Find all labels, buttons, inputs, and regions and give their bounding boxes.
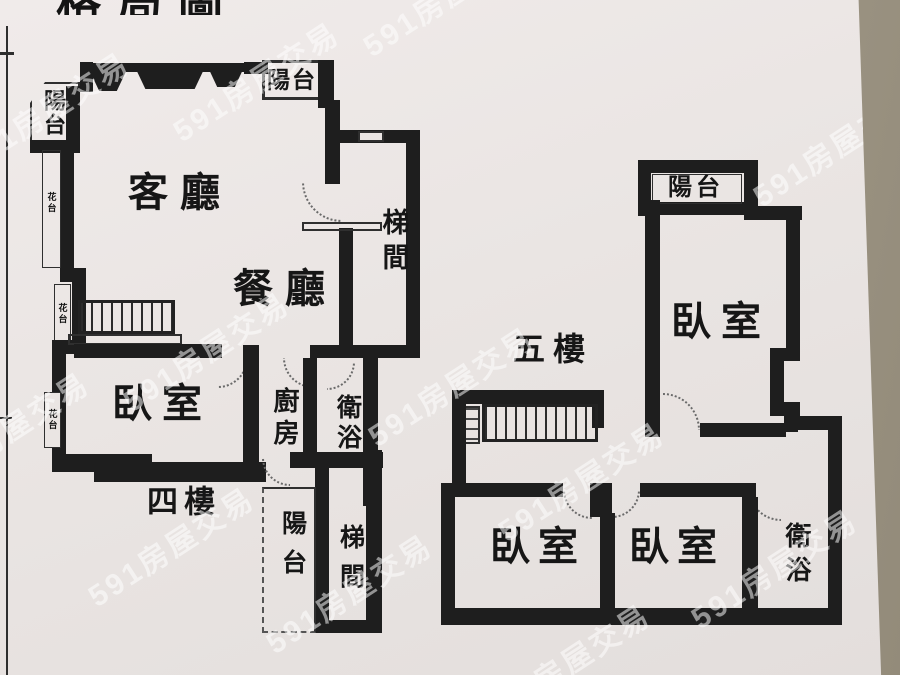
- margin-tick: [0, 417, 12, 419]
- door-threshold: [302, 222, 382, 231]
- page-title-text: 格局圖: [56, 0, 239, 15]
- wall: [243, 345, 259, 470]
- watermark: 591房屋交易: [743, 75, 900, 216]
- wall: [60, 148, 74, 274]
- floor-label-4f: 四樓: [147, 487, 221, 518]
- room-label-stairwell-bottom-4f: 梯間: [338, 524, 363, 602]
- wall: [310, 345, 420, 358]
- room-label-balcony-5f: 陽台: [668, 176, 724, 200]
- wall: [339, 228, 353, 358]
- room-label-bedroom-top-5f: 臥室: [671, 302, 771, 342]
- wall: [441, 483, 455, 615]
- room-label-stairwell-right-4f: 梯間: [380, 208, 407, 278]
- room-label-balcony-bottom-4f: 陽台: [280, 510, 305, 588]
- watermark: 591房屋交易: [474, 592, 658, 675]
- wall: [600, 513, 615, 615]
- wall: [640, 483, 756, 497]
- wall: [74, 344, 222, 358]
- room-label-balcony-top-4f: 陽台: [267, 69, 317, 92]
- wall: [645, 200, 660, 437]
- door-arc: [626, 393, 700, 467]
- planter-label: 花台: [48, 409, 57, 431]
- wall: [315, 620, 382, 633]
- floor-label-5f: 五樓: [513, 333, 593, 365]
- room-label-living-4f: 客廳: [128, 173, 232, 213]
- stairs-4f: [78, 300, 175, 334]
- wall: [452, 390, 604, 404]
- wall: [744, 497, 758, 615]
- wall: [126, 63, 214, 89]
- room-label-bedroom-left-5f: 臥室: [490, 527, 586, 567]
- wall: [80, 62, 93, 92]
- room-label-bathroom-4f: 衛浴: [335, 394, 360, 454]
- wall: [786, 214, 800, 360]
- wall: [206, 63, 246, 87]
- door-arc: [188, 328, 248, 388]
- wall: [315, 467, 329, 632]
- wall: [452, 404, 466, 484]
- room-label-bedroom-4f: 臥室: [112, 384, 212, 424]
- margin-line: [6, 26, 8, 675]
- clipped-page-title: 格局圖: [28, 0, 328, 15]
- door-arc: [302, 142, 382, 222]
- wall: [700, 423, 786, 437]
- room-label-bathroom-5f: 衛浴: [783, 522, 809, 590]
- watermark: 591房屋交易: [353, 0, 537, 65]
- stairs-5f: [482, 404, 598, 442]
- room-label-kitchen-4f: 廚房: [271, 387, 297, 451]
- planter-label: 花台: [47, 192, 56, 214]
- wall: [590, 483, 612, 517]
- wall: [441, 483, 563, 497]
- room-label-balcony-topleft-4f: 陽台: [42, 89, 64, 137]
- wall: [441, 608, 842, 625]
- wall: [94, 462, 266, 482]
- wall: [366, 450, 382, 632]
- wall: [638, 160, 756, 173]
- room-label-dining-4f: 餐廳: [233, 269, 337, 309]
- planter-label: 花台: [58, 303, 67, 325]
- wall: [66, 86, 80, 148]
- room-label-bedroom-right-5f: 臥室: [629, 527, 725, 567]
- wall: [828, 416, 842, 623]
- floorplan-paper: 格局圖: [0, 0, 900, 675]
- margin-tick: [0, 52, 14, 55]
- window-recess: [358, 131, 384, 142]
- photo-background: 格局圖: [0, 0, 900, 675]
